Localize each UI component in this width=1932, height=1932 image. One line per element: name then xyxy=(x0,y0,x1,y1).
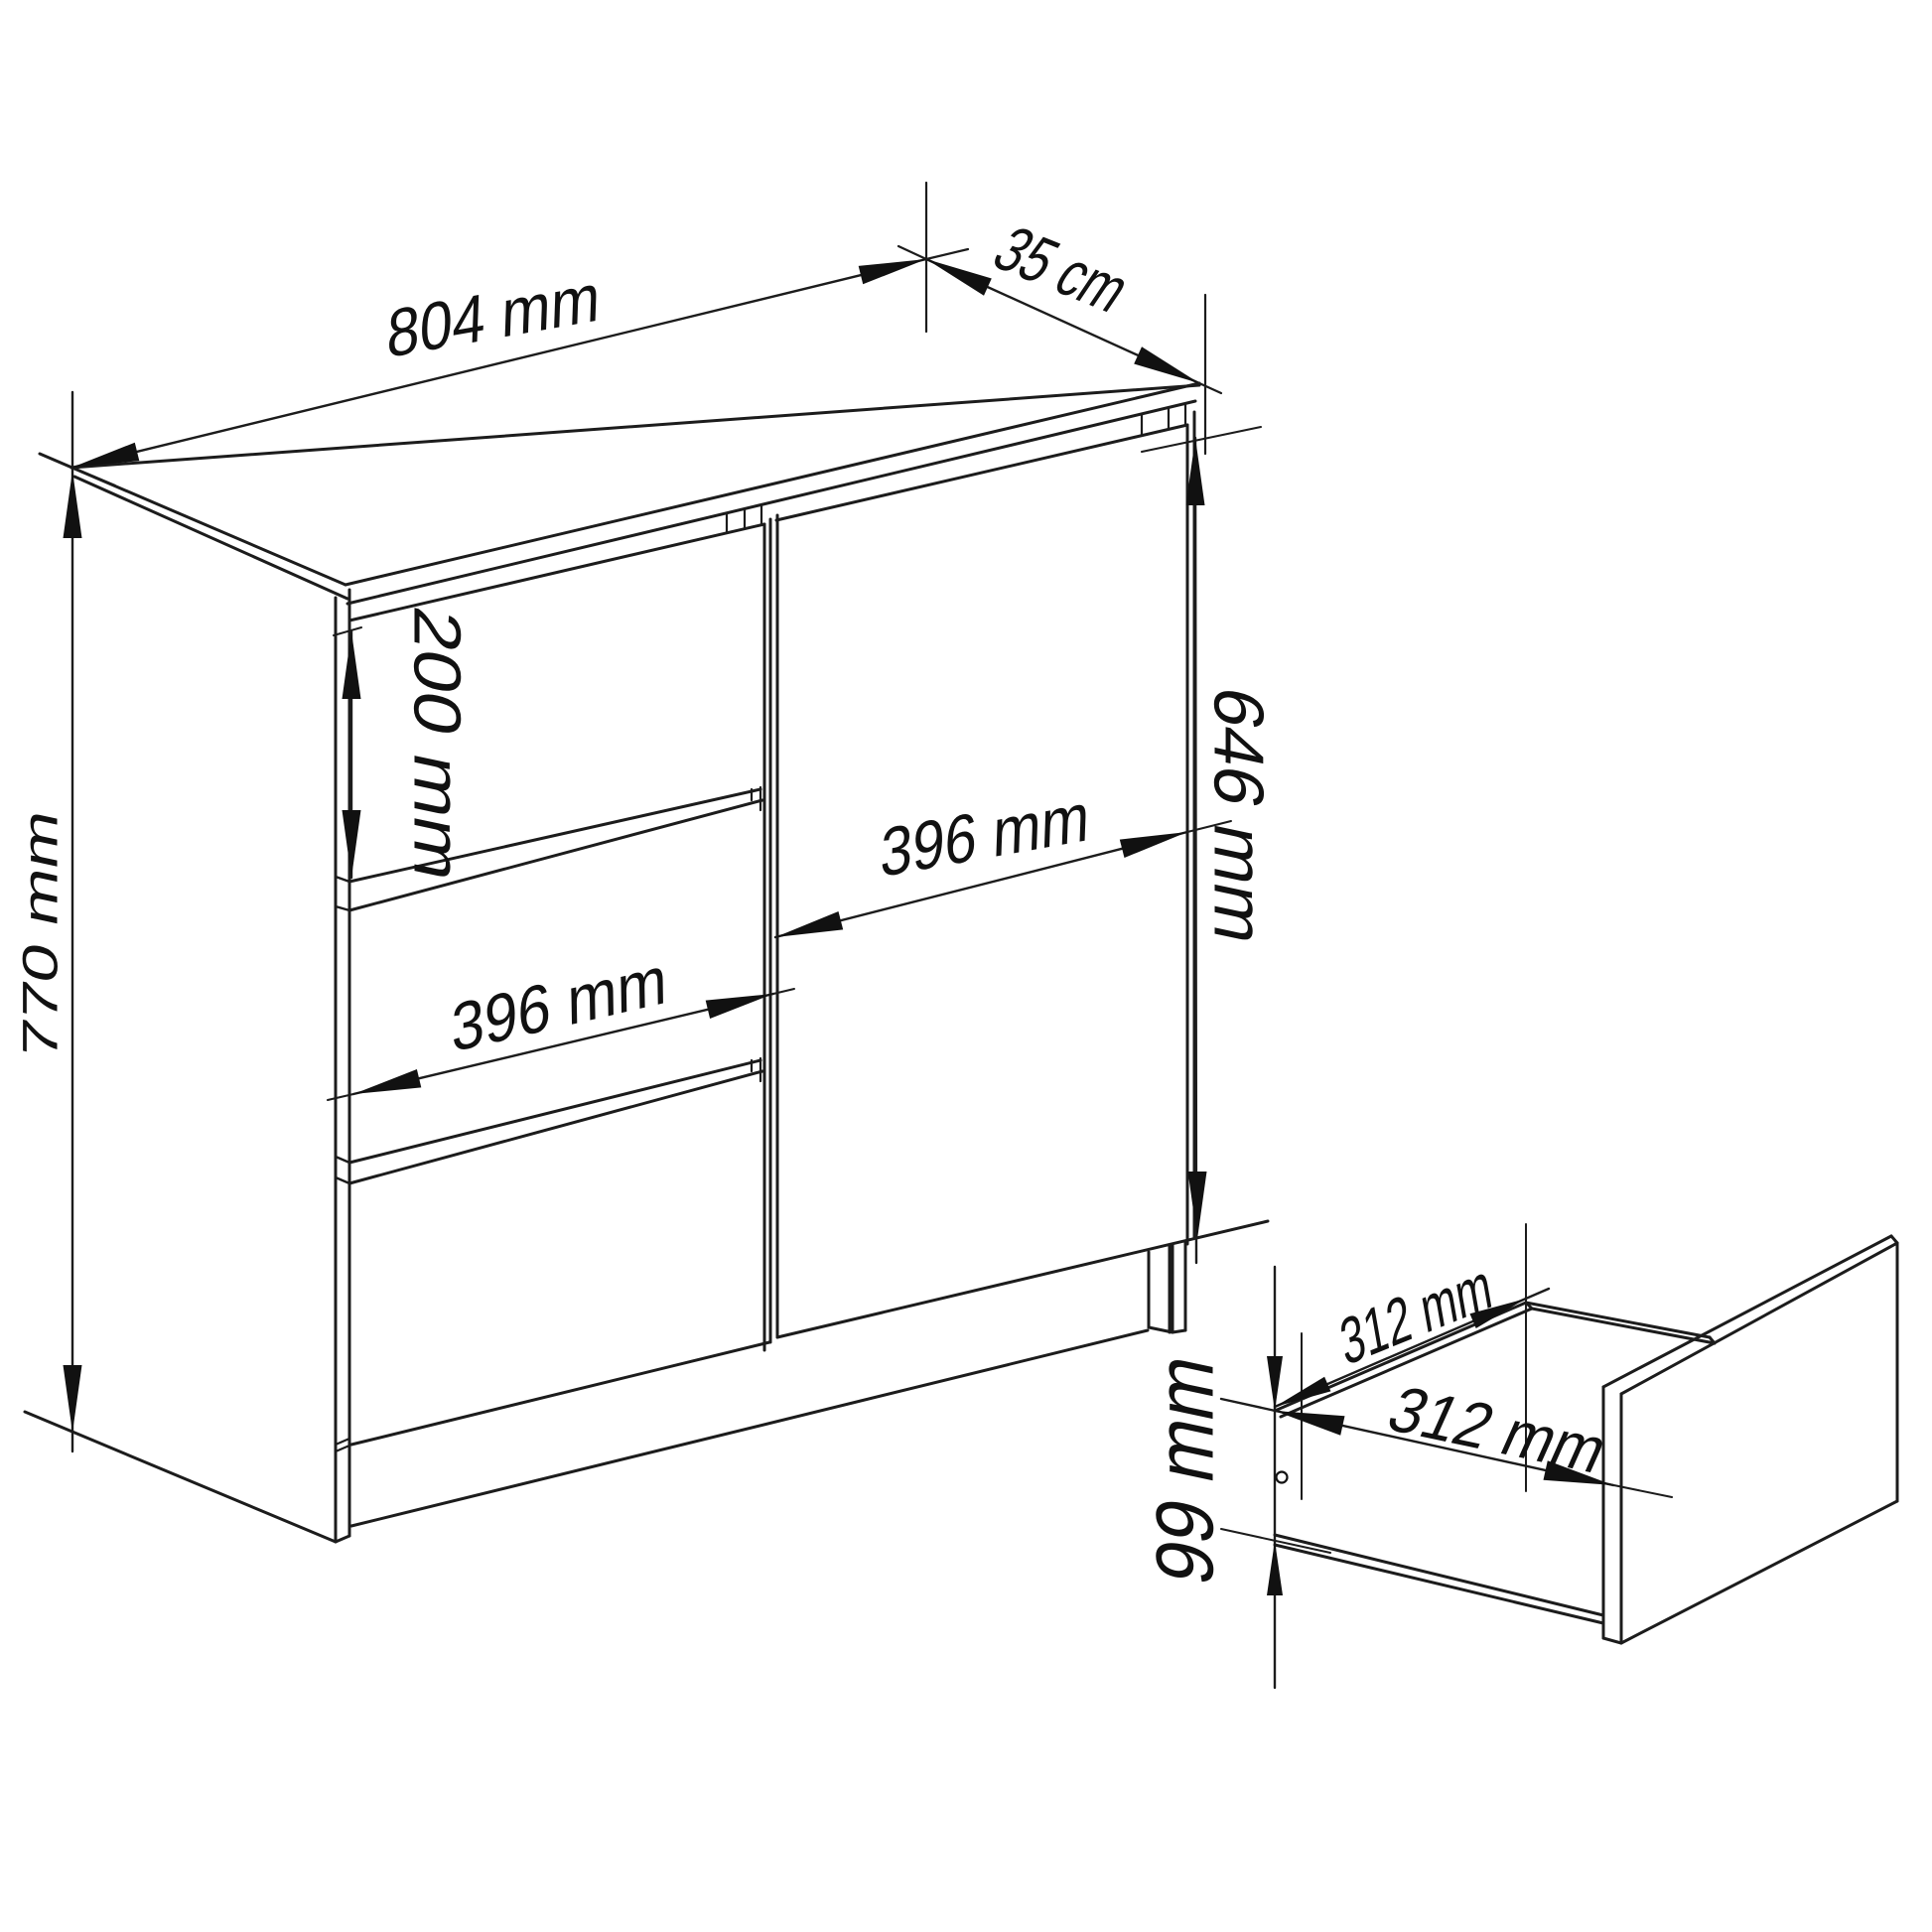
svg-text:200 mm: 200 mm xyxy=(400,601,474,888)
svg-text:770 mm: 770 mm xyxy=(12,804,68,1063)
svg-text:99 mm: 99 mm xyxy=(1139,1346,1230,1592)
svg-text:646 mm: 646 mm xyxy=(1198,680,1277,951)
